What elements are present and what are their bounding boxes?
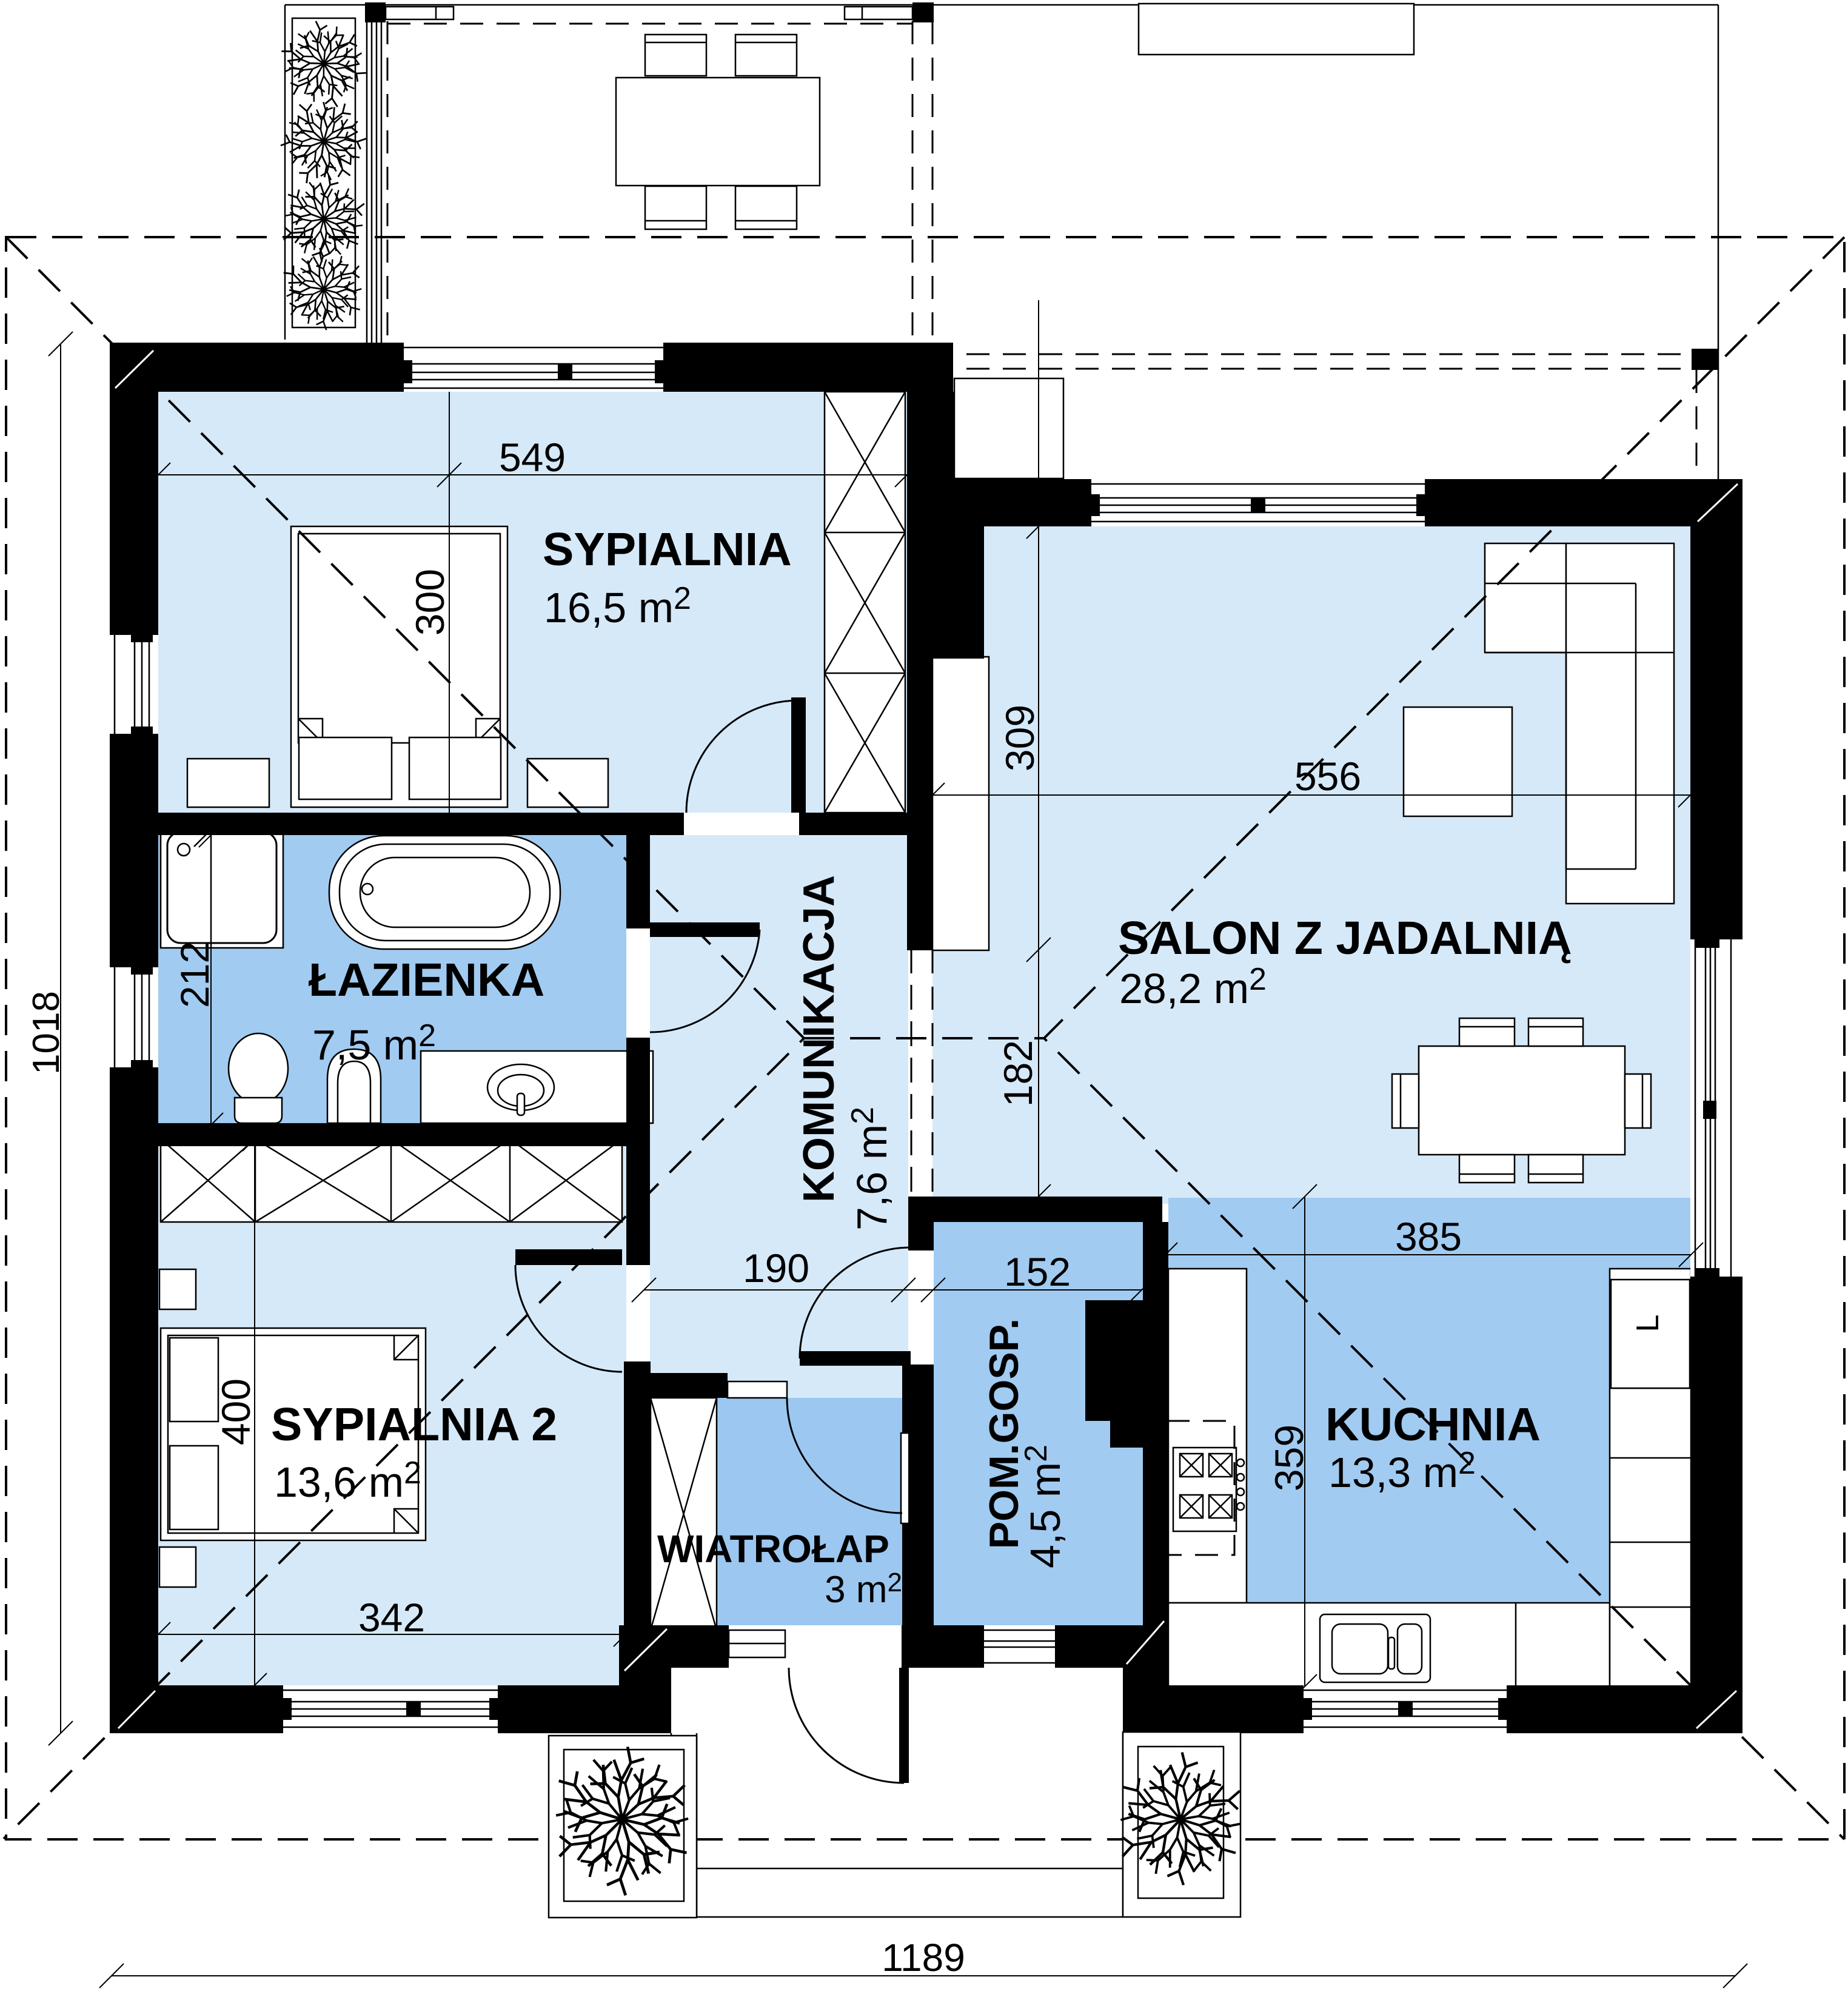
svg-text:POM.GOSP.: POM.GOSP. — [981, 1318, 1027, 1549]
svg-text:7,6 m2: 7,6 m2 — [845, 1107, 896, 1230]
svg-text:400: 400 — [213, 1378, 258, 1445]
svg-text:556: 556 — [1294, 754, 1361, 799]
svg-text:190: 190 — [743, 1246, 809, 1291]
svg-text:212: 212 — [172, 941, 217, 1008]
svg-text:KOMUNIKACJA: KOMUNIKACJA — [795, 875, 843, 1203]
svg-text:7,5 m2: 7,5 m2 — [312, 1018, 436, 1069]
svg-text:549: 549 — [499, 435, 566, 480]
svg-text:309: 309 — [997, 705, 1042, 771]
svg-text:28,2 m2: 28,2 m2 — [1119, 962, 1267, 1012]
svg-text:152: 152 — [1004, 1249, 1071, 1294]
svg-text:342: 342 — [358, 1595, 425, 1640]
svg-text:182: 182 — [996, 1040, 1040, 1107]
svg-text:16,5 m2: 16,5 m2 — [544, 581, 691, 631]
svg-text:385: 385 — [1395, 1214, 1462, 1259]
svg-text:ŁAZIENKA: ŁAZIENKA — [309, 954, 544, 1006]
svg-text:KUCHNIA: KUCHNIA — [1325, 1398, 1541, 1451]
svg-text:359: 359 — [1267, 1425, 1311, 1491]
svg-text:13,6 m2: 13,6 m2 — [274, 1455, 421, 1506]
svg-text:SALON Z JADALNIĄ: SALON Z JADALNIĄ — [1118, 912, 1572, 964]
svg-text:1018: 1018 — [25, 991, 67, 1075]
svg-text:L: L — [1630, 1315, 1666, 1332]
svg-text:SYPIALNIA 2: SYPIALNIA 2 — [271, 1398, 557, 1451]
svg-text:SYPIALNIA: SYPIALNIA — [543, 523, 792, 576]
svg-text:1189: 1189 — [882, 1936, 965, 1979]
svg-text:13,3 m2: 13,3 m2 — [1328, 1446, 1476, 1496]
svg-text:WIATROŁAP: WIATROŁAP — [657, 1527, 889, 1571]
svg-text:4,5 m2: 4,5 m2 — [1019, 1445, 1069, 1568]
svg-text:300: 300 — [407, 569, 452, 636]
